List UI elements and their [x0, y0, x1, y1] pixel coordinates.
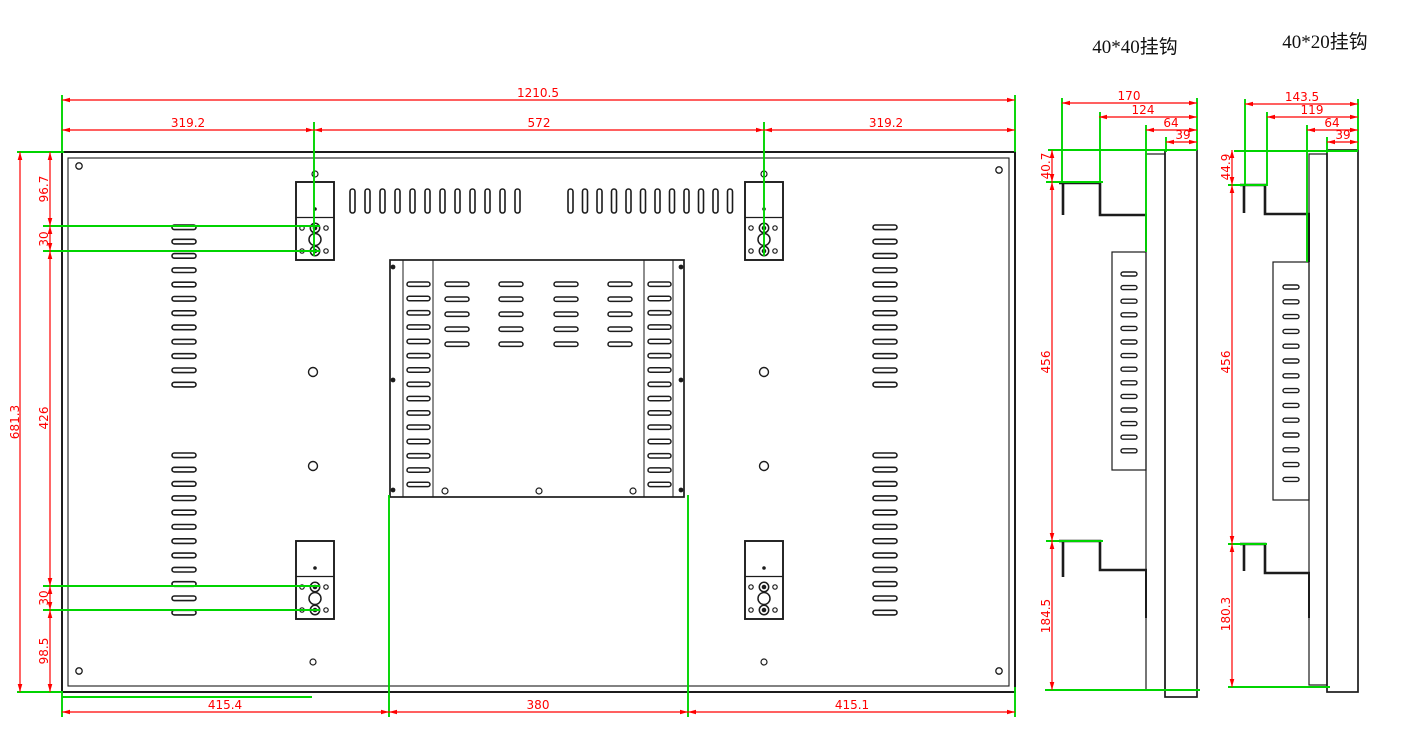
side-vent-slot	[172, 268, 196, 273]
plate-vent-slot	[407, 454, 430, 458]
dim-label-40x20-bottom-offset: 180.3	[1219, 597, 1233, 631]
box-vent-slot	[1121, 422, 1137, 426]
top-vent-slot	[485, 189, 490, 213]
dim-label-40x20-inner: 119	[1301, 103, 1324, 117]
bracket-hole	[749, 585, 753, 589]
corner-hole	[76, 668, 82, 674]
plate-vent-slot	[608, 297, 632, 301]
arrowhead	[1007, 98, 1015, 103]
box-vent-slot	[1283, 433, 1299, 437]
dim-label-left-middle: 426	[37, 407, 51, 430]
top-vent-slot	[440, 189, 445, 213]
box-vent-slot	[1121, 354, 1137, 358]
box-vent-slot	[1121, 367, 1137, 371]
side-vent-slot	[172, 239, 196, 244]
dim-label-left-top: 96.7	[37, 176, 51, 203]
arrowhead	[1230, 185, 1235, 193]
bracket-hole	[773, 608, 777, 612]
plate-vent-slot	[648, 368, 671, 372]
hook-40x20-title: 40*20挂钩	[1282, 31, 1368, 53]
arrowhead	[1062, 101, 1070, 106]
box-vent-slot	[1121, 299, 1137, 303]
arrowhead	[48, 610, 53, 618]
arrowhead	[1050, 541, 1055, 549]
dim-label-40x40-bottom-offset: 184.5	[1039, 599, 1053, 633]
side-vent-slot	[873, 453, 897, 458]
bracket-hole	[773, 249, 777, 253]
bracket-hole	[324, 249, 328, 253]
arrowhead	[1230, 544, 1235, 552]
box-vent-slot	[1121, 408, 1137, 412]
plate-vent-slot	[648, 468, 671, 472]
arrowhead	[764, 128, 772, 133]
side-vent-slot	[873, 525, 897, 530]
dim-label-overall-width: 1210.5	[517, 86, 559, 100]
plate-vent-slot	[407, 482, 430, 486]
dim-label-40x20-top-offset: 44.9	[1219, 154, 1233, 181]
side-vent-slot	[873, 539, 897, 544]
top-vent-slot	[655, 189, 660, 213]
plate-vent-slot	[445, 297, 469, 301]
plate-vent-slot	[407, 396, 430, 400]
top-vent-slot	[515, 189, 520, 213]
corner-hole	[76, 163, 82, 169]
plate-vent-slot	[648, 482, 671, 486]
plate-vent-slot	[648, 382, 671, 386]
box-vent-slot	[1283, 300, 1299, 304]
dim-label-bottom-right: 415.1	[835, 698, 869, 712]
box-vent-slot	[1121, 286, 1137, 290]
arrowhead	[1350, 102, 1358, 107]
plate-vent-slot	[648, 454, 671, 458]
plate-vent-slot	[499, 312, 523, 316]
display-profile-40x40	[1165, 150, 1197, 697]
plate-hole	[442, 488, 448, 494]
arrowhead	[1230, 679, 1235, 687]
arrowhead	[306, 128, 314, 133]
side-vent-slot	[873, 496, 897, 501]
top-vent-slot	[597, 189, 602, 213]
plate-vent-slot	[648, 425, 671, 429]
side-vent-slot	[172, 453, 196, 458]
bracket-top-hole	[312, 171, 318, 177]
panel-hole	[760, 368, 769, 377]
side-vent-slot	[172, 311, 196, 316]
plate-vent-slot	[407, 311, 430, 315]
bracket-hole	[324, 585, 328, 589]
arrowhead	[62, 128, 70, 133]
box-vent-slot	[1121, 394, 1137, 398]
panel-hole	[310, 659, 316, 665]
plate-vent-slot	[608, 342, 632, 346]
arrowhead	[48, 578, 53, 586]
plate-vent-slot	[407, 296, 430, 300]
display-profile-40x20	[1327, 150, 1358, 692]
plate-hole	[536, 488, 542, 494]
side-vent-slot	[873, 596, 897, 601]
bracket-ring-center	[762, 585, 767, 590]
plate-screw	[391, 265, 396, 270]
bracket-hole	[324, 226, 328, 230]
plate-vent-slot	[407, 411, 430, 415]
rear-panel-outer	[62, 152, 1015, 692]
plate-screw	[391, 488, 396, 493]
top-vent-slot	[365, 189, 370, 213]
monitor-rear-mounting-drawing: 1210.5 319.2 572 319.2 415.4 380 415.1 6…	[0, 0, 1423, 737]
bracket-hole	[749, 226, 753, 230]
arrowhead	[1050, 682, 1055, 690]
plate-vent-slot	[407, 282, 430, 286]
arrowhead	[1245, 102, 1253, 107]
arrowhead	[18, 152, 23, 160]
dim-label-40x20-overall: 143.5	[1285, 90, 1319, 104]
side-vent-slot	[873, 225, 897, 230]
side-vent-slot	[873, 268, 897, 273]
arrowhead	[18, 684, 23, 692]
side-vent-slot	[873, 567, 897, 572]
panel-hole	[761, 659, 767, 665]
box-vent-slot	[1283, 285, 1299, 289]
dim-label-left-pitch-bottom: 30	[37, 590, 51, 605]
side-vent-slot	[873, 482, 897, 487]
plate-vent-slot	[608, 327, 632, 331]
side-vent-slot	[873, 510, 897, 515]
box-vent-slot	[1283, 403, 1299, 407]
top-vent-slot	[670, 189, 675, 213]
side-vent-slot	[172, 354, 196, 359]
side-vent-slot	[172, 282, 196, 287]
side-vent-slot	[873, 610, 897, 615]
plate-vent-slot	[648, 339, 671, 343]
side-vent-slot	[172, 482, 196, 487]
arrowhead	[1230, 536, 1235, 544]
bracket-center-hole	[309, 593, 321, 605]
plate-screw	[679, 265, 684, 270]
box-vent-slot	[1121, 449, 1137, 453]
side-vent-slot	[873, 254, 897, 259]
side-vent-slot	[172, 596, 196, 601]
plate-vent-slot	[648, 354, 671, 358]
plate-vent-slot	[407, 325, 430, 329]
bracket-dot	[313, 566, 317, 570]
side-vent-slot	[172, 368, 196, 373]
plate-vent-slot	[499, 282, 523, 286]
arrowhead	[1350, 140, 1358, 145]
dim-label-40x40-top-offset: 40.7	[1039, 153, 1053, 180]
box-vent-slot	[1121, 435, 1137, 439]
back-cover-profile-40x20	[1309, 154, 1327, 685]
arrowhead	[1350, 115, 1358, 120]
arrowhead	[48, 684, 53, 692]
plate-vent-slot	[648, 411, 671, 415]
plate-vent-slot	[445, 327, 469, 331]
panel-hole	[309, 462, 318, 471]
side-vent-slot	[172, 525, 196, 530]
top-vent-slot	[583, 189, 588, 213]
arrowhead	[1050, 533, 1055, 541]
plate-vent-slot	[648, 325, 671, 329]
box-vent-slot	[1283, 329, 1299, 333]
box-vent-slot	[1121, 381, 1137, 385]
top-vent-slot	[626, 189, 631, 213]
arrowhead	[62, 98, 70, 103]
arrowhead	[1327, 140, 1335, 145]
side-vent-slot	[172, 325, 196, 330]
arrowhead	[688, 710, 696, 715]
dim-label-40x40-overall: 170	[1118, 89, 1141, 103]
arrowhead	[1189, 115, 1197, 120]
plate-screw	[679, 378, 684, 383]
box-vent-slot	[1283, 344, 1299, 348]
side-vent-slot	[873, 354, 897, 359]
plate-vent-slot	[554, 327, 578, 331]
plate-vent-slot	[648, 311, 671, 315]
top-vent-slot	[425, 189, 430, 213]
plate-vent-slot	[608, 312, 632, 316]
dim-label-40x40-inner: 124	[1132, 103, 1155, 117]
top-vent-slot	[350, 189, 355, 213]
plate-screw	[391, 378, 396, 383]
bracket-dot	[762, 566, 766, 570]
box-vent-slot	[1121, 340, 1137, 344]
arrowhead	[1146, 128, 1154, 133]
box-vent-slot	[1283, 315, 1299, 319]
box-vent-slot	[1283, 463, 1299, 467]
corner-hole	[996, 668, 1002, 674]
box-vent-slot	[1121, 326, 1137, 330]
side-vent-slot	[172, 553, 196, 558]
arrowhead	[1050, 182, 1055, 190]
top-vent-slot	[500, 189, 505, 213]
box-vent-slot	[1283, 359, 1299, 363]
plate-vent-slot	[554, 282, 578, 286]
bracket-hole	[324, 608, 328, 612]
plate-vent-slot	[445, 282, 469, 286]
arrowhead	[680, 710, 688, 715]
top-vent-slot	[713, 189, 718, 213]
bracket-center-hole	[309, 234, 321, 246]
side-vent-slot	[172, 467, 196, 472]
side-vent-slot	[172, 254, 196, 259]
bracket-ring-center	[762, 608, 767, 613]
plate-vent-slot	[407, 339, 430, 343]
bracket-hole	[773, 585, 777, 589]
arrowhead	[1166, 140, 1174, 145]
side-vent-slot	[172, 510, 196, 515]
arrowhead	[381, 710, 389, 715]
arrowhead	[756, 128, 764, 133]
bracket-hole	[749, 608, 753, 612]
side-vent-slot	[172, 382, 196, 387]
central-mount-plate	[390, 260, 684, 497]
arrowhead	[1007, 710, 1015, 715]
dim-label-40x40-span: 456	[1039, 351, 1053, 374]
dim-label-overall-height: 681.3	[8, 405, 22, 439]
plate-vent-slot	[445, 312, 469, 316]
back-cover-profile-40x40	[1146, 154, 1165, 690]
arrowhead	[1007, 128, 1015, 133]
side-vent-slot	[873, 282, 897, 287]
plate-vent-slot	[407, 354, 430, 358]
plate-vent-slot	[407, 468, 430, 472]
arrowhead	[1307, 128, 1315, 133]
arrowhead	[1350, 128, 1358, 133]
dim-label-bottom-center: 380	[527, 698, 550, 712]
plate-vent-slot	[554, 297, 578, 301]
side-vent-slot	[172, 496, 196, 501]
side-vent-slot	[873, 239, 897, 244]
side-vent-slot	[873, 368, 897, 373]
top-vent-slot	[470, 189, 475, 213]
dim-label-top-center: 572	[528, 116, 551, 130]
arrowhead	[1189, 101, 1197, 106]
side-vent-slot	[172, 297, 196, 302]
plate-vent-slot	[499, 297, 523, 301]
dim-label-bottom-left: 415.4	[208, 698, 242, 712]
plate-vent-slot	[499, 342, 523, 346]
top-vent-slot	[684, 189, 689, 213]
box-vent-slot	[1121, 272, 1137, 276]
plate-vent-slot	[648, 296, 671, 300]
plate-screw	[679, 488, 684, 493]
plate-vent-slot	[648, 396, 671, 400]
top-vent-slot	[699, 189, 704, 213]
dim-label-40x20-span: 456	[1219, 351, 1233, 374]
top-vent-slot	[380, 189, 385, 213]
plate-vent-slot	[407, 439, 430, 443]
dim-label-40x40-panel: 39	[1175, 128, 1190, 142]
arrowhead	[314, 128, 322, 133]
arrowhead	[48, 218, 53, 226]
side-vent-slot	[873, 382, 897, 387]
top-vent-slot	[395, 189, 400, 213]
top-vent-slot	[612, 189, 617, 213]
bracket-hole	[749, 249, 753, 253]
rear-panel-inner	[68, 158, 1009, 686]
dim-label-top-right: 319.2	[869, 116, 903, 130]
side-vent-slot	[172, 567, 196, 572]
arrowhead	[62, 710, 70, 715]
dim-label-top-left: 319.2	[171, 116, 205, 130]
dim-label-left-pitch-top: 30	[37, 231, 51, 246]
box-vent-slot	[1121, 313, 1137, 317]
plate-vent-slot	[554, 312, 578, 316]
hook-40x40-title: 40*40挂钩	[1092, 36, 1178, 58]
top-vent-slot	[641, 189, 646, 213]
side-vent-slot	[172, 339, 196, 344]
side-vent-slot	[172, 610, 196, 615]
box-vent-slot	[1283, 448, 1299, 452]
side-vent-slot	[873, 467, 897, 472]
side-vent-slot	[873, 325, 897, 330]
plate-vent-slot	[445, 342, 469, 346]
plate-vent-slot	[407, 425, 430, 429]
arrowhead	[1267, 115, 1275, 120]
box-vent-slot	[1283, 477, 1299, 481]
top-vent-slot	[455, 189, 460, 213]
panel-hole	[309, 368, 318, 377]
top-vent-slot	[568, 189, 573, 213]
side-vent-slot	[172, 539, 196, 544]
arrowhead	[389, 710, 397, 715]
side-vent-slot	[873, 311, 897, 316]
bracket-hole	[773, 226, 777, 230]
side-vent-slot	[873, 553, 897, 558]
bracket-center-hole	[758, 593, 770, 605]
top-vent-slot	[410, 189, 415, 213]
dim-label-left-bottom: 98.5	[37, 638, 51, 665]
plate-vent-slot	[648, 282, 671, 286]
box-vent-slot	[1283, 389, 1299, 393]
plate-vent-slot	[499, 327, 523, 331]
box-vent-slot	[1283, 374, 1299, 378]
plate-vent-slot	[554, 342, 578, 346]
arrowhead	[48, 152, 53, 160]
plate-vent-slot	[648, 439, 671, 443]
plate-hole	[630, 488, 636, 494]
dim-label-40x20-panel: 39	[1335, 128, 1350, 142]
top-vent-slot	[728, 189, 733, 213]
panel-hole	[760, 462, 769, 471]
arrowhead	[48, 251, 53, 259]
side-vent-slot	[873, 339, 897, 344]
plate-vent-slot	[608, 282, 632, 286]
panel-geometry	[62, 150, 1358, 697]
side-vent-slot	[873, 582, 897, 587]
corner-hole	[996, 167, 1002, 173]
plate-vent-slot	[407, 368, 430, 372]
engineering-drawing-canvas: 1210.5 319.2 572 319.2 415.4 380 415.1 6…	[0, 0, 1423, 737]
side-vent-slot	[873, 297, 897, 302]
box-vent-slot	[1283, 418, 1299, 422]
plate-vent-slot	[407, 382, 430, 386]
